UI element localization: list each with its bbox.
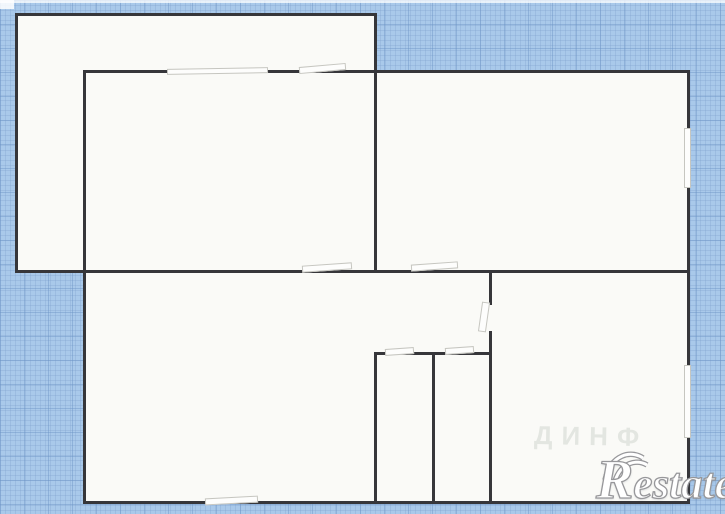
restate-watermark-rest: estate	[633, 461, 725, 508]
window-symbol	[684, 128, 691, 188]
restate-watermark: Restate	[596, 452, 725, 508]
wall	[374, 352, 377, 504]
wall	[374, 13, 377, 273]
scan-corner-artifact	[0, 0, 14, 9]
window-symbol	[684, 365, 691, 438]
wall	[15, 270, 690, 273]
restate-watermark-initial: R	[596, 449, 633, 511]
wall	[15, 13, 377, 16]
floorplan-scan: ДИНФ Restate	[0, 0, 725, 514]
wall	[15, 13, 18, 273]
wall	[432, 352, 435, 504]
wall	[83, 70, 86, 504]
scan-edge-artifact	[0, 0, 725, 3]
door-gap	[489, 305, 492, 331]
